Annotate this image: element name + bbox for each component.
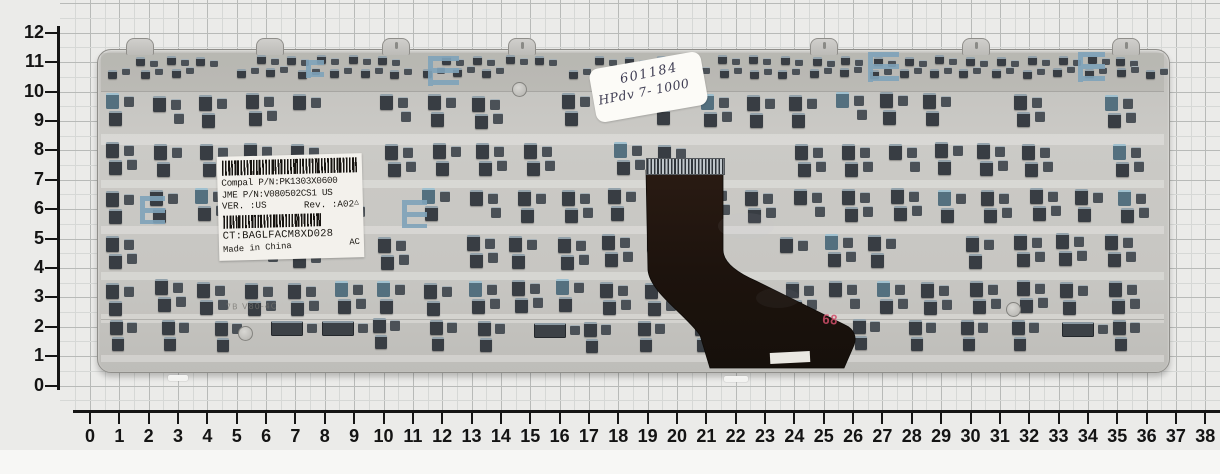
key-bracket (1078, 52, 1105, 82)
key-clip (1074, 236, 1084, 247)
key-clip (781, 56, 790, 65)
key-clip (914, 67, 922, 74)
key-clip (1118, 190, 1131, 206)
key-clip (997, 57, 1006, 66)
key-clip (1035, 111, 1045, 122)
key-clip (246, 93, 259, 109)
key-clip (172, 147, 182, 158)
key-clip (109, 160, 122, 175)
key-clip (877, 281, 890, 297)
key-clip (778, 70, 787, 79)
key-clip (1033, 206, 1046, 221)
key-clip (485, 238, 495, 249)
key-clip (939, 285, 949, 296)
key-clip (1035, 251, 1045, 262)
key-clip (1136, 193, 1146, 204)
key-clip (472, 96, 485, 112)
key-clip (912, 205, 922, 216)
key-clip (857, 109, 867, 120)
key-clip (1075, 189, 1088, 205)
part-label: Compal P/N:PK1303X0600 JME P/N:V080502CS… (217, 153, 365, 261)
key-clip (181, 59, 189, 66)
key-clip (600, 282, 613, 298)
key-clip (361, 69, 370, 78)
key-clip (217, 98, 227, 109)
key-clip (1121, 208, 1134, 223)
key-clip (953, 145, 963, 156)
key-clip (427, 301, 440, 316)
key-clip (155, 279, 168, 295)
key-clip (911, 337, 923, 351)
key-clip (792, 68, 800, 75)
key-clip (1038, 297, 1048, 308)
key-clip (1134, 161, 1144, 172)
key-clip (889, 144, 902, 160)
key-clip (909, 320, 922, 335)
key-clip (307, 323, 317, 333)
key-clip (306, 286, 316, 297)
key-clip (973, 299, 986, 314)
key-clip (935, 55, 944, 64)
key-clip (249, 111, 262, 126)
key-clip (949, 58, 957, 65)
key-clip (938, 160, 951, 175)
key-clip (1077, 250, 1087, 261)
key-clip (1108, 113, 1121, 128)
key-clip (1139, 207, 1149, 218)
key-clip (168, 193, 178, 204)
key-clip (959, 69, 968, 78)
key-clip (840, 68, 849, 77)
key-clip (1105, 95, 1118, 111)
key-bracket (140, 196, 165, 224)
key-clip (280, 66, 288, 73)
key-clip (980, 161, 993, 176)
key-clip (406, 161, 416, 172)
key-clip (425, 206, 438, 221)
key-clip (338, 299, 351, 314)
key-clip (1131, 147, 1141, 158)
key-clip (580, 96, 590, 107)
key-clip (432, 337, 444, 351)
key-clip (880, 299, 893, 314)
key-clip (601, 324, 611, 335)
key-clip (1030, 188, 1043, 204)
key-clip (1113, 320, 1126, 335)
key-clip (1023, 70, 1032, 79)
key-clip (1131, 66, 1139, 73)
key-clip (880, 92, 893, 108)
key-clip (1032, 237, 1042, 248)
key-clip (895, 284, 905, 295)
key-clip (898, 95, 908, 106)
key-clip (910, 161, 920, 172)
key-clip (565, 208, 578, 223)
cable-sheen (718, 213, 774, 239)
key-clip (562, 190, 575, 206)
key-clip (1017, 280, 1030, 296)
key-clip (106, 142, 119, 158)
key-clip (112, 337, 124, 351)
key-clip (764, 68, 772, 75)
key-clip (1059, 251, 1072, 266)
key-clip (1040, 147, 1050, 158)
key-clip (174, 113, 184, 124)
key-clip (942, 299, 952, 310)
key-clip (447, 322, 457, 333)
key-clip (810, 69, 819, 78)
key-clip (467, 235, 480, 251)
key-clip (824, 67, 832, 74)
ribbon-cable (628, 148, 868, 378)
key-clip (109, 209, 122, 224)
key-clip (734, 67, 742, 74)
key-clip (1051, 205, 1061, 216)
key-clip (586, 339, 598, 353)
key-clip (907, 147, 917, 158)
key-clip (176, 296, 186, 307)
key-clip (1108, 252, 1121, 267)
key-clip (1020, 298, 1033, 313)
key-clip (836, 92, 849, 108)
key-clip (154, 144, 167, 160)
key-clip (524, 143, 537, 159)
key-clip (1043, 161, 1053, 172)
screw-hole (238, 326, 253, 341)
key-clip (506, 55, 515, 64)
key-clip (442, 286, 452, 297)
bottom-tab (168, 375, 188, 381)
key-clip (999, 193, 1009, 204)
key-clip (518, 190, 531, 206)
key-clip (436, 161, 449, 176)
key-clip (487, 284, 497, 295)
key-clip (559, 297, 572, 312)
key-clip (980, 60, 988, 67)
key-clip (988, 284, 998, 295)
key-clip (1113, 144, 1126, 160)
key-clip (291, 301, 304, 316)
key-clip (973, 67, 981, 74)
key-clip (431, 112, 444, 127)
key-clip (603, 300, 616, 315)
key-clip (966, 236, 979, 252)
key-clip (200, 300, 213, 315)
key-clip (396, 240, 406, 251)
key-clip (534, 323, 566, 338)
key-bracket (402, 200, 427, 228)
key-clip (127, 253, 137, 264)
key-clip (898, 298, 908, 309)
key-clip (1037, 68, 1045, 75)
key-clip (472, 299, 485, 314)
key-clip (813, 57, 822, 66)
key-clip (478, 321, 491, 336)
key-clip (392, 59, 400, 66)
key-clip (574, 282, 584, 293)
key-clip (509, 236, 522, 252)
key-clip (841, 56, 850, 65)
key-clip (173, 282, 183, 293)
key-clip (747, 95, 760, 111)
key-clip (1060, 282, 1073, 298)
key-clip (385, 144, 398, 160)
key-clip (969, 254, 982, 269)
photo-stage: 0123456789101112 01234567891011121314151… (0, 0, 1220, 474)
key-clip (124, 286, 134, 297)
key-clip (1035, 283, 1045, 294)
key-clip (124, 96, 134, 107)
key-clip (375, 67, 383, 74)
key-clip (941, 208, 954, 223)
key-clip (217, 338, 229, 352)
key-clip (789, 95, 802, 111)
key-clip (1063, 300, 1076, 315)
key-clip (264, 96, 274, 107)
key-clip (179, 322, 189, 333)
key-clip (155, 68, 163, 75)
key-clip (237, 69, 246, 78)
key-clip (545, 160, 555, 171)
key-clip (403, 147, 413, 158)
key-clip (1059, 56, 1068, 65)
key-clip (141, 70, 150, 79)
key-clip (109, 254, 122, 269)
key-clip (749, 55, 758, 64)
key-clip (497, 160, 507, 171)
key-clip (378, 237, 391, 253)
screw-hole (1006, 302, 1021, 317)
key-clip (428, 94, 441, 110)
key-clip (1012, 320, 1025, 335)
key-clip (257, 55, 266, 64)
key-clip (124, 239, 134, 250)
key-clip (106, 191, 119, 207)
key-clip (266, 68, 275, 77)
key-clip (496, 67, 504, 74)
key-clip (542, 146, 552, 157)
key-clip (530, 283, 540, 294)
key-clip (995, 146, 1005, 157)
warning-triangle-icon: △ (354, 198, 359, 207)
label-version: VER. :US (222, 200, 267, 214)
key-clip (488, 252, 498, 263)
key-clip (966, 57, 975, 66)
key-clip (363, 58, 371, 65)
key-clip (580, 193, 590, 204)
key-clip (157, 162, 170, 177)
key-bracket (306, 60, 324, 78)
key-clip (521, 208, 534, 223)
key-clip (358, 323, 368, 333)
key-clip (1002, 207, 1012, 218)
key-clip (562, 93, 575, 109)
key-clip (512, 254, 525, 269)
key-clip (106, 283, 119, 299)
key-clip (482, 69, 491, 78)
key-clip (792, 113, 805, 128)
key-clip (309, 300, 319, 311)
key-clip (388, 162, 401, 177)
key-clip (605, 252, 618, 267)
key-clip (763, 58, 771, 65)
key-clip (287, 56, 296, 65)
key-clip (197, 282, 210, 298)
key-clip (493, 113, 503, 124)
key-clip (921, 282, 934, 298)
key-clip (722, 111, 732, 122)
key-clip (961, 320, 974, 335)
key-clip (106, 236, 119, 252)
key-clip (150, 60, 158, 67)
cable-sticker (770, 351, 811, 364)
key-clip (380, 94, 393, 110)
key-clip (520, 58, 528, 65)
key-clip (488, 193, 498, 204)
key-clip (215, 285, 225, 296)
key-clip (195, 188, 208, 204)
ribbon-cable-body (646, 170, 855, 368)
key-clip (1130, 322, 1140, 333)
key-clip (446, 97, 456, 108)
key-clip (883, 110, 896, 125)
key-clip (349, 55, 358, 64)
key-clip (618, 285, 628, 296)
key-clip (923, 93, 936, 109)
key-clip (854, 95, 864, 106)
key-clip (398, 97, 408, 108)
key-clip (470, 253, 483, 268)
key-clip (491, 207, 501, 218)
key-clip (984, 208, 997, 223)
key-clip (719, 97, 729, 108)
key-clip (288, 283, 301, 299)
key-clip (536, 193, 546, 204)
key-clip (527, 239, 537, 250)
key-clip (956, 193, 966, 204)
key-clip (924, 300, 937, 315)
key-clip (611, 206, 624, 221)
key-clip (203, 162, 216, 177)
key-clip (251, 67, 259, 74)
key-clip (894, 206, 907, 221)
key-clip (1053, 68, 1062, 77)
key-clip (1123, 237, 1133, 248)
key-clip (871, 253, 884, 268)
key-clip (765, 98, 775, 109)
key-clip (381, 255, 394, 270)
label-ac: AC (349, 236, 360, 248)
key-clip (495, 323, 505, 334)
key-clip (1032, 97, 1042, 108)
key-clip (109, 111, 122, 126)
key-clip (991, 298, 1001, 309)
key-clip (535, 56, 544, 65)
key-clip (1146, 70, 1155, 79)
key-clip (1126, 251, 1136, 262)
key-clip (558, 237, 571, 253)
key-clip (1093, 192, 1103, 203)
key-clip (1017, 112, 1030, 127)
label-made-in: Made in China (223, 240, 292, 256)
key-clip (1123, 98, 1133, 109)
key-clip (401, 111, 411, 122)
key-clip (1130, 298, 1140, 309)
key-clip (480, 338, 492, 352)
key-clip (981, 190, 994, 206)
embossed-code: 7B V80-4C (226, 302, 277, 312)
key-clip (186, 67, 194, 74)
key-clip (469, 281, 482, 297)
key-clip (153, 96, 166, 112)
key-clip (512, 280, 525, 296)
key-clip (886, 238, 896, 249)
key-clip (569, 70, 578, 79)
key-clip (245, 283, 258, 299)
key-clip (198, 206, 211, 221)
key-clip (938, 190, 951, 206)
key-clip (1098, 324, 1108, 334)
key-clip (977, 143, 990, 159)
key-clip (210, 60, 218, 67)
key-clip (109, 301, 122, 316)
key-clip (271, 58, 279, 65)
key-clip (1116, 57, 1125, 66)
key-clip (854, 66, 862, 73)
key-clip (202, 113, 215, 128)
key-bracket (428, 56, 459, 86)
key-clip (970, 281, 983, 297)
cable-contact-fingers (646, 158, 725, 175)
key-clip (158, 297, 171, 312)
key-clip (167, 56, 176, 65)
key-clip (1042, 59, 1050, 66)
key-clip (963, 337, 975, 351)
key-clip (1116, 162, 1129, 177)
key-clip (905, 57, 914, 66)
key-clip (704, 112, 717, 127)
key-clip (373, 318, 386, 333)
key-clip (1160, 68, 1168, 75)
key-clip (377, 281, 390, 297)
key-clip (494, 146, 504, 157)
key-clip (108, 70, 117, 79)
cable-sheen (756, 288, 800, 308)
key-clip (171, 99, 181, 110)
key-clip (110, 320, 123, 335)
key-clip (795, 59, 803, 66)
key-clip (984, 239, 994, 250)
label-revision: Rev. :A02△ (304, 197, 359, 211)
key-clip (900, 69, 909, 78)
key-clip (344, 67, 352, 74)
key-clip (1017, 252, 1030, 267)
key-clip (267, 110, 277, 121)
key-clip (992, 69, 1001, 78)
key-clip (479, 161, 492, 176)
key-clip (322, 321, 354, 336)
key-clip (476, 143, 489, 159)
key-clip (470, 190, 483, 206)
barcode (223, 213, 322, 229)
key-clip (106, 93, 119, 109)
key-clip (395, 284, 405, 295)
key-clip (1006, 67, 1014, 74)
key-clip (549, 59, 557, 66)
key-clip (353, 284, 363, 295)
key-clip (390, 320, 400, 331)
key-clip (487, 59, 495, 66)
